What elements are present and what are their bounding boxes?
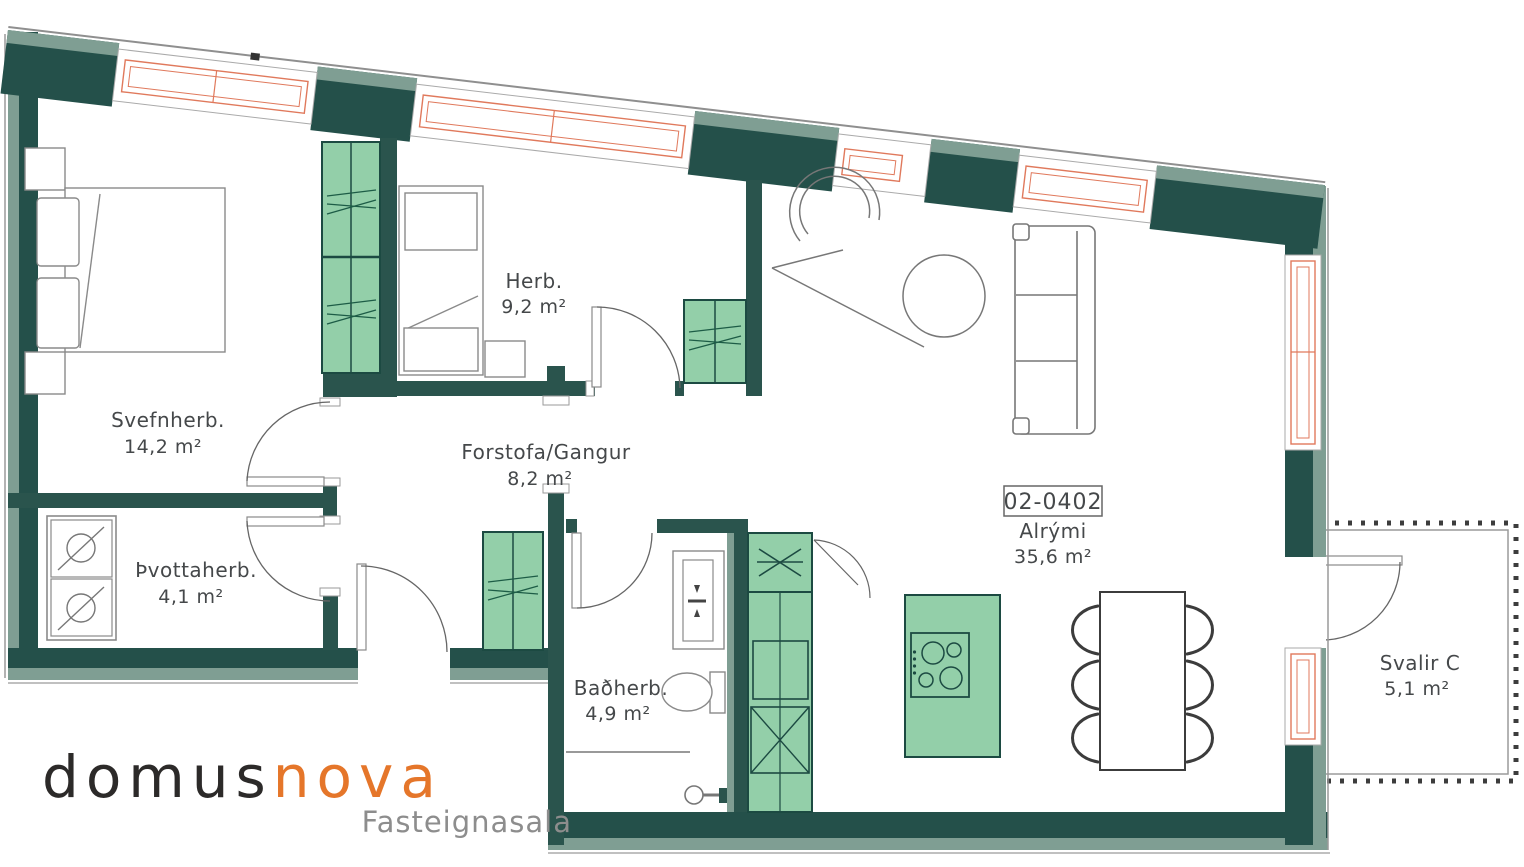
- top-window-4: [1013, 155, 1156, 223]
- bottom-main-wall-sage: [548, 838, 1328, 850]
- room-label-badherb: Baðherb. 4,9 m²: [574, 676, 668, 725]
- fridge-door-leaf: [814, 540, 858, 585]
- room-area: 8,2 m²: [507, 468, 572, 490]
- nightstand: [25, 352, 65, 394]
- room-label-svefnherb: Svefnherb. 14,2 m²: [111, 408, 225, 458]
- room-name: Baðherb.: [574, 676, 668, 700]
- sofa: [1013, 224, 1095, 434]
- balcony-door-leaf: [1322, 556, 1402, 565]
- lounge-chair: [772, 167, 924, 347]
- nightstand: [25, 148, 65, 190]
- bedroom-door-swing-arc: [247, 402, 330, 481]
- toilet-bowl: [662, 673, 712, 711]
- kitchen-island: [905, 595, 1000, 757]
- room-label-thvottaherb: Þvottaherb. 4,1 m²: [135, 558, 257, 608]
- dining-chair: [1073, 714, 1099, 762]
- unit-number: 02-0402: [1004, 490, 1103, 515]
- dining-chair: [1187, 606, 1213, 654]
- room-name: Forstofa/Gangur: [461, 440, 631, 464]
- bed-foot-rect: [404, 328, 478, 371]
- wardrobe-herb: [684, 300, 746, 383]
- room-name: Svalir C: [1380, 651, 1460, 675]
- shower-mount: [719, 788, 727, 803]
- wall-wardrobe-stub: [323, 373, 397, 397]
- logo-domus: domus: [42, 743, 273, 811]
- dining-table: [1100, 592, 1185, 770]
- bottom-left-wall: [8, 648, 560, 668]
- room-area: 14,2 m²: [124, 436, 202, 458]
- logo-domusnova: domusnova Fasteignasala: [42, 748, 572, 837]
- wall-bedroom-laundry: [8, 493, 323, 508]
- chair-seat-edge: [772, 250, 843, 268]
- laundry-door-swing-arc: [247, 521, 330, 601]
- bathroom-door-leaf: [572, 533, 581, 608]
- entrance-door-leaf: [357, 564, 366, 650]
- pillow: [37, 198, 79, 266]
- room-area: 35,6 m²: [1014, 546, 1092, 568]
- wall-laundry-right: [323, 595, 338, 650]
- room-label-herb: Herb. 9,2 m²: [501, 269, 566, 318]
- double-bed: [65, 188, 225, 352]
- svefnherb-furniture: [25, 148, 225, 394]
- entrance-opening: [358, 642, 450, 688]
- dining-chair: [1073, 606, 1099, 654]
- wall-hall-column: [547, 366, 565, 397]
- room-label-alrymi: 02-0402 Alrými 35,6 m²: [1004, 486, 1103, 568]
- shower-head-icon: [685, 786, 703, 804]
- dining-set: [1073, 592, 1213, 770]
- room-name: Þvottaherb.: [135, 558, 257, 582]
- top-wall-vent-mark: [250, 53, 260, 61]
- right-wall-seg2: [1285, 450, 1313, 557]
- logo-tagline: Fasteignasala: [42, 808, 572, 837]
- sofa-armrest: [1013, 418, 1029, 434]
- wall-herb-bottom: [397, 381, 595, 396]
- logo-wordmark: domusnova: [42, 743, 443, 811]
- top-window-3: [832, 134, 930, 197]
- sofa-body: [1015, 226, 1095, 434]
- wall-hall-connector: [323, 485, 337, 518]
- room-area: 4,1 m²: [158, 586, 223, 608]
- wardrobe-svefnherb: [322, 142, 380, 373]
- wall-svefnherb-herb: [380, 138, 397, 378]
- nightstand: [485, 341, 525, 377]
- side-table: [903, 255, 985, 337]
- room-name: Herb.: [505, 269, 562, 293]
- bottom-left-wall-sage: [8, 668, 560, 680]
- pillow: [37, 278, 79, 348]
- dining-chair: [1073, 661, 1099, 709]
- left-wall-sage: [8, 32, 19, 672]
- jamb: [543, 396, 569, 405]
- bottom-main-wall: [548, 812, 1328, 838]
- laundry-door-leaf: [247, 517, 324, 526]
- laundry-appliances: [47, 516, 116, 640]
- room-area: 5,1 m²: [1384, 678, 1449, 700]
- wall-bath-top-left: [566, 519, 577, 533]
- wall-bath-top-right: [657, 519, 748, 533]
- wall-bath-kitchen-sage: [727, 533, 734, 812]
- wall-herb-living: [746, 180, 762, 396]
- balcony-door-opening: [1285, 557, 1326, 648]
- wardrobe-hallway: [483, 532, 543, 650]
- bedroom-door-leaf: [247, 477, 324, 486]
- room-name: Svefnherb.: [111, 408, 225, 432]
- right-wall-seg3: [1285, 745, 1313, 845]
- floor-plan-canvas: Svefnherb. 14,2 m² Herb. 9,2 m² Forstofa…: [0, 0, 1524, 867]
- room-name: Alrými: [1019, 519, 1086, 543]
- chair-seat-edge: [772, 268, 924, 347]
- room-area: 4,9 m²: [585, 703, 650, 725]
- logo-nova: nova: [273, 743, 443, 811]
- dining-chair: [1187, 661, 1213, 709]
- room-label-forstofa: Forstofa/Gangur 8,2 m²: [461, 440, 631, 490]
- wall-bath-kitchen: [734, 533, 748, 812]
- entrance-door-swing-arc: [361, 566, 447, 652]
- sofa-armrest: [1013, 224, 1029, 240]
- floor-plan-page: Svefnherb. 14,2 m² Herb. 9,2 m² Forstofa…: [0, 0, 1524, 867]
- dining-chair: [1187, 714, 1213, 762]
- herb-door-leaf: [592, 307, 601, 387]
- jamb: [320, 588, 340, 596]
- herb-door-swing-arc: [597, 307, 680, 388]
- room-area: 9,2 m²: [501, 296, 566, 318]
- right-window-wall: [1285, 186, 1328, 850]
- kitchen: [748, 533, 1000, 812]
- pillow: [405, 193, 477, 250]
- bathroom-door-swing-arc: [577, 533, 652, 608]
